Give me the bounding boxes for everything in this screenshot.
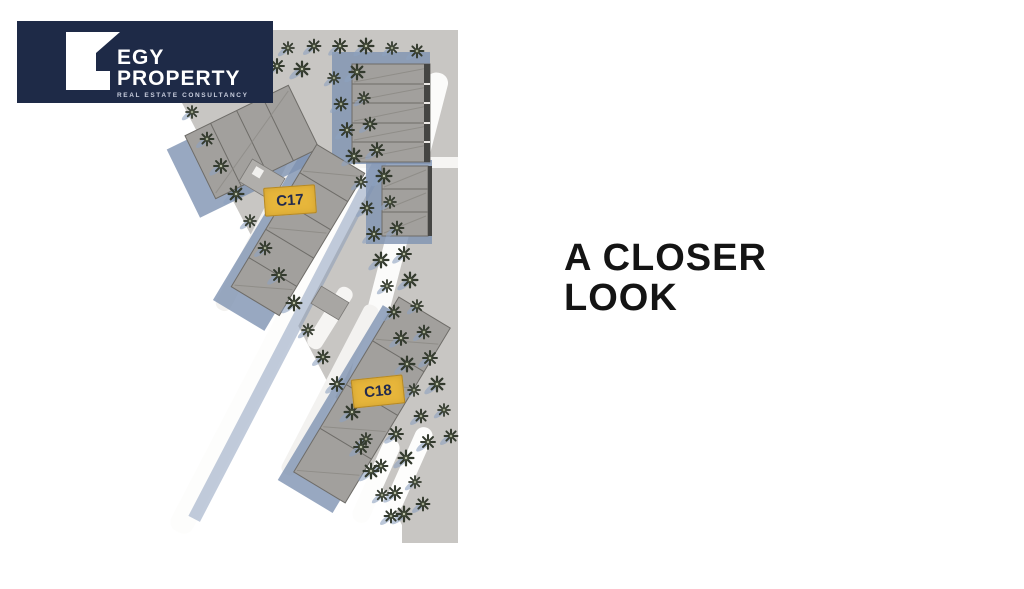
page-title-line2: LOOK bbox=[564, 278, 767, 318]
brand-tagline: REAL ESTATE CONSULTANCY bbox=[117, 93, 249, 100]
brand-name-line2: PROPERTY bbox=[117, 68, 249, 89]
page-title: A CLOSER LOOK bbox=[564, 238, 767, 318]
unit-marker-c18: C18 bbox=[351, 374, 406, 408]
building-block-north bbox=[352, 64, 430, 162]
brand-logo: EGY PROPERTY REAL ESTATE CONSULTANCY bbox=[17, 21, 273, 103]
unit-marker-c17: C17 bbox=[263, 184, 317, 217]
page-title-line1: A CLOSER bbox=[564, 238, 767, 278]
brand-logo-text: EGY PROPERTY REAL ESTATE CONSULTANCY bbox=[117, 47, 249, 100]
page: EGY PROPERTY REAL ESTATE CONSULTANCY A C… bbox=[0, 0, 1024, 589]
brand-name-line1: EGY bbox=[117, 47, 249, 68]
